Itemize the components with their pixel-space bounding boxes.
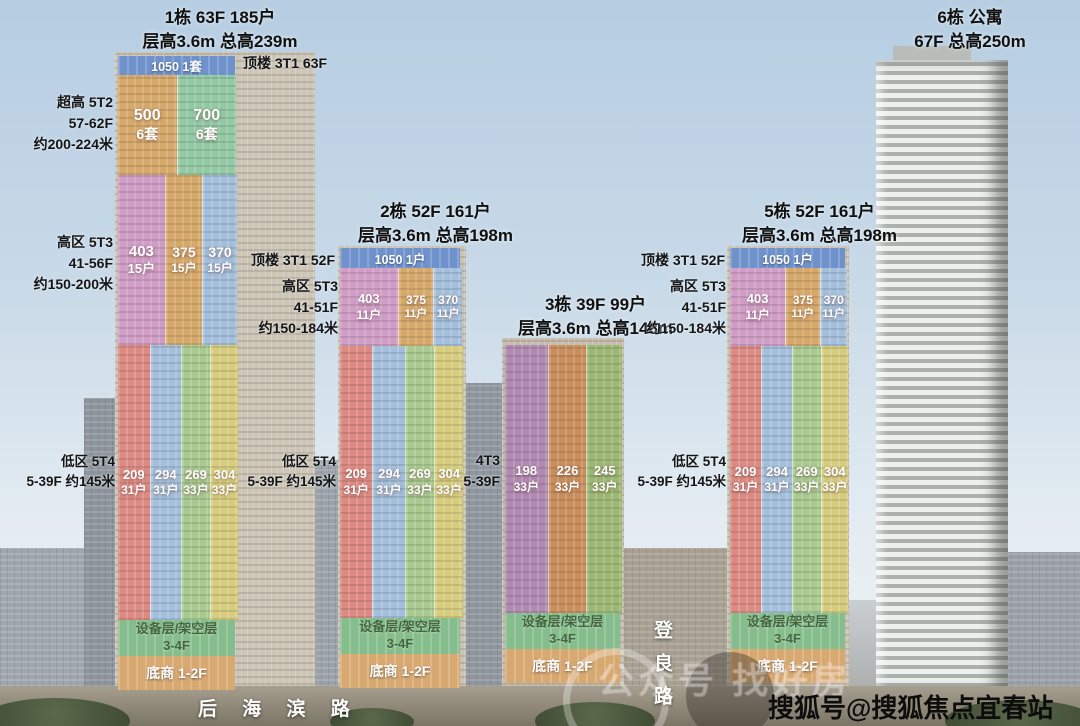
annotated-towers-photo: 1050 1套 500 6套 700 6套 403 15户 375 15户 37… [0, 0, 1080, 726]
tower5-equipment-band: 设备层/架空层 3-4F [730, 613, 845, 649]
zone-high-370: 370 11户 [433, 268, 462, 346]
zone-high-403: 403 11户 [340, 268, 398, 346]
zone-super-700: 700 6套 [177, 75, 237, 175]
tower3-zones: 198 33户 226 33户 245 33户 [505, 345, 620, 613]
zone-high-370: 370 11户 [820, 268, 847, 346]
zone-low-209: 209 31户 [730, 346, 761, 613]
tower1-title: 1栋 63F 185户 层高3.6m 总高239m [95, 6, 345, 54]
zone-low-304: 304 33户 [821, 346, 848, 613]
tower5-roof-label: 顶楼 3T1 52F [620, 250, 725, 270]
tower2-high-label: 高区 5T3 41-51F 约150-184米 [238, 276, 338, 339]
zone-high-375: 375 11户 [785, 268, 819, 346]
tower5-high-zones: 403 11户 375 11户 370 11户 [730, 268, 845, 346]
tower5-high-label: 高区 5T3 41-51F 约150-184米 [626, 276, 726, 339]
tower5-low-label: 低区 5T4 5-39F 约145米 [616, 452, 726, 493]
tower1-top-band: 1050 1套 [118, 56, 235, 75]
tower5-low-zones: 209 31户 294 31户 269 33户 304 33户 [730, 346, 845, 613]
tower3-equipment-band: 设备层/架空层 3-4F [505, 613, 620, 649]
background-building [84, 398, 118, 693]
tower5-top-band: 1050 1户 [730, 248, 845, 268]
tower2-low-label: 低区 5T4 5-39F 约145米 [228, 452, 336, 493]
tower1-retail-band: 底商 1-2F [118, 656, 235, 690]
tower2-high-zones: 403 11户 375 11户 370 11户 [340, 268, 460, 346]
zone-low-209: 209 31户 [340, 346, 372, 618]
tower1-high-zones: 403 15户 375 15户 370 15户 [118, 175, 235, 345]
tower3-low-label: 4T3 5-39F [428, 450, 500, 492]
road-label-houhaibin: 后 海 滨 路 [198, 694, 360, 721]
tower2-equipment-band: 设备层/架空层 3-4F [340, 618, 460, 654]
tower2-roof-label: 顶楼 3T1 52F [230, 250, 335, 270]
zone-high-375: 375 15户 [165, 175, 202, 345]
zone-high-375: 375 11户 [398, 268, 434, 346]
tower1-low-label: 低区 5T4 5-39F 约145米 [2, 452, 115, 493]
tower6-title: 6栋 公寓 67F 总高250m [855, 6, 1080, 54]
zone-low-269: 269 33户 [181, 345, 210, 620]
zone-high-403: 403 11户 [730, 268, 785, 346]
zone-low-209: 209 31户 [118, 345, 150, 620]
tower1-top-band-label: 1050 1套 [151, 56, 202, 75]
tower1-high-label: 高区 5T3 41-56F 约150-200米 [8, 232, 113, 295]
tower1-super-zones: 500 6套 700 6套 [118, 75, 235, 175]
zone-226: 226 33户 [548, 345, 587, 613]
tower2-title: 2栋 52F 161户 层高3.6m 总高198m [318, 200, 553, 248]
tower2-top-band: 1050 1户 [340, 248, 460, 268]
tower1-super-label: 超高 5T2 57-62F 约200-224米 [8, 92, 113, 155]
zone-low-294: 294 31户 [372, 346, 404, 618]
tower1-roof-label: 顶楼 3T1 63F [243, 53, 373, 73]
zone-low-294: 294 31户 [150, 345, 181, 620]
zone-low-294: 294 31户 [761, 346, 792, 613]
zone-low-269: 269 33户 [792, 346, 821, 613]
tower1-low-zones: 209 31户 294 31户 269 33户 304 33户 [118, 345, 235, 620]
zone-198: 198 33户 [505, 345, 548, 613]
tower5-title: 5栋 52F 161户 层高3.6m 总高198m [702, 200, 937, 248]
watermark-sohu-text: 搜狐号@搜狐焦点宜春站 [768, 688, 1053, 725]
zone-super-500: 500 6套 [118, 75, 177, 175]
background-building [1004, 552, 1080, 693]
zone-high-403: 403 15户 [118, 175, 165, 345]
tower2-retail-band: 底商 1-2F [340, 654, 460, 688]
tower1-equipment-band: 设备层/架空层 3-4F [118, 620, 235, 656]
tower6-photo [876, 60, 1008, 692]
